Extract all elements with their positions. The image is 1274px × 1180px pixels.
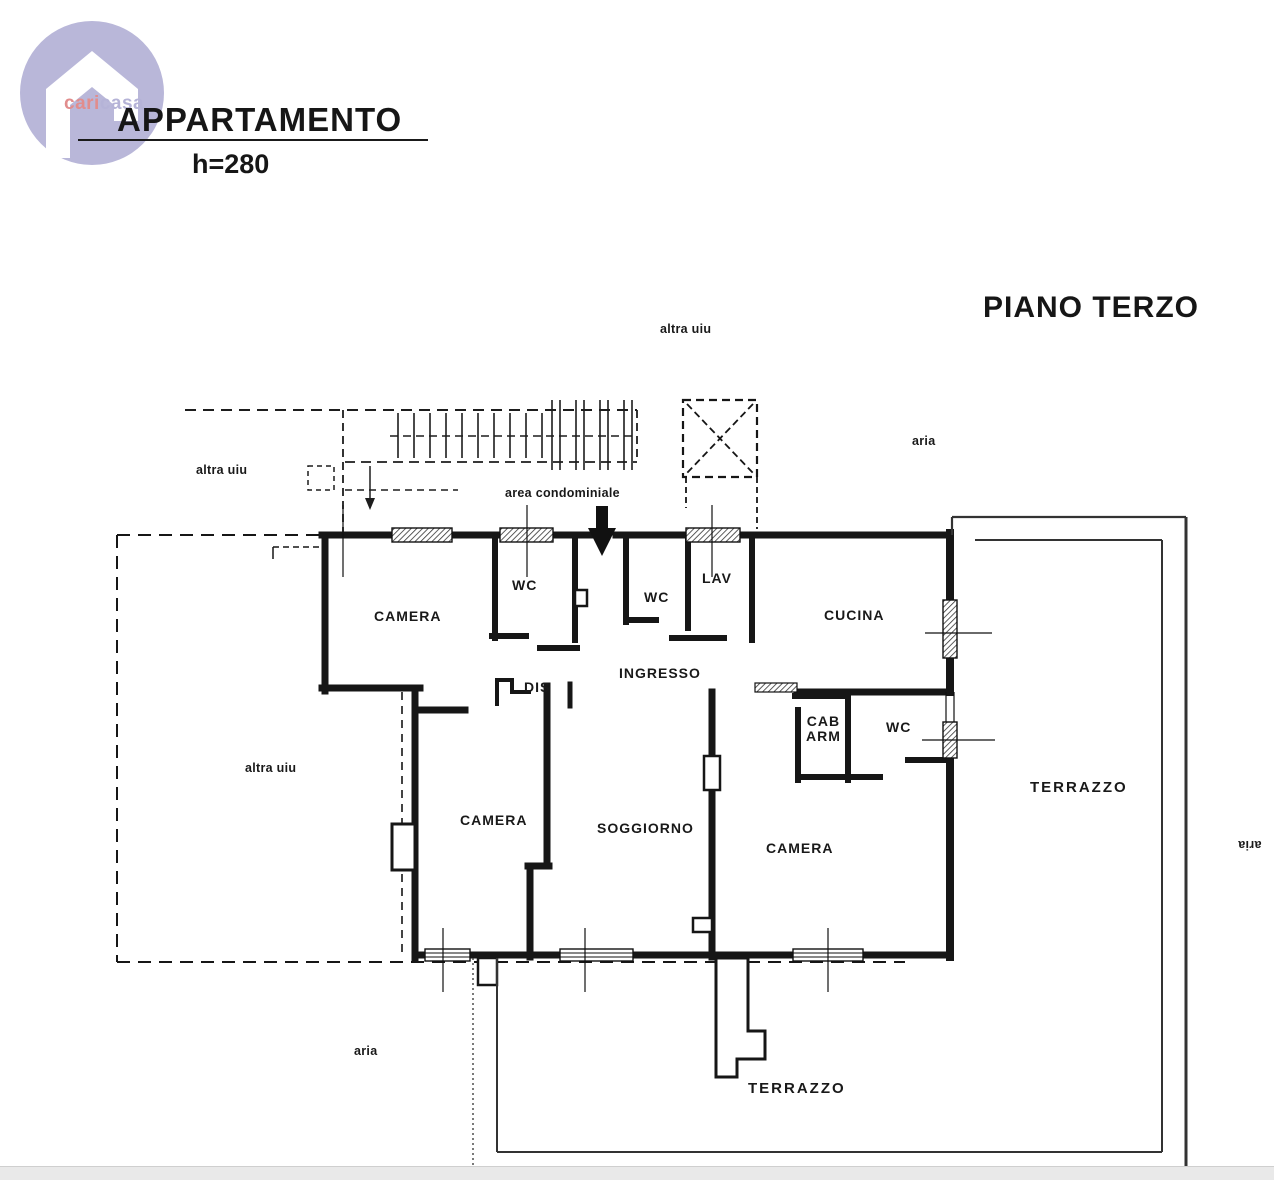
room-label-camera-right: CAMERA [766,840,833,856]
bottom-bar [0,1166,1274,1180]
entrance-arrow-icon [588,506,616,556]
room-label-terrazzo-bottom: TERRAZZO [748,1080,846,1097]
staircase [185,400,637,535]
room-label-wc-mid: WC [644,589,669,605]
annotation-aria-bottom-left: aria [354,1044,377,1058]
room-label-camera-left: CAMERA [460,812,527,828]
room-label-wc-top: WC [512,577,537,593]
section-marks [343,505,995,992]
annotation-area-condominiale: area condominiale [505,486,620,500]
annotation-aria-right-edge: aria [1238,838,1261,852]
dashed-boundaries [117,535,905,962]
floor-plan-page: caricasa APPARTAMENTO h=280 PIANO TERZO [0,0,1274,1180]
floor-plan-drawing [0,0,1274,1180]
room-label-cab-arm: CAB ARM [806,714,841,744]
room-label-dis: DIS [524,679,550,695]
terrace-door [946,692,954,722]
room-label-lav: LAV [702,570,732,586]
room-label-cucina: CUCINA [824,607,884,623]
stair-direction-arrow [365,466,375,510]
elevator-shaft [683,400,757,529]
annotation-altra-uiu-top: altra uiu [660,322,711,336]
windows [392,528,957,758]
annotation-altra-uiu-left: altra uiu [196,463,247,477]
room-label-soggiorno: SOGGIORNO [597,820,694,836]
apartment-walls [322,533,950,958]
annotation-altra-uiu-mid: altra uiu [245,761,296,775]
room-label-arm: ARM [806,729,841,744]
room-label-terrazzo-right: TERRAZZO [1030,779,1128,796]
room-label-wc-right: WC [886,719,911,735]
room-label-camera-top: CAMERA [374,608,441,624]
annotation-aria-top-right: aria [912,434,935,448]
room-label-cab: CAB [806,714,841,729]
room-label-ingresso: INGRESSO [619,665,701,681]
